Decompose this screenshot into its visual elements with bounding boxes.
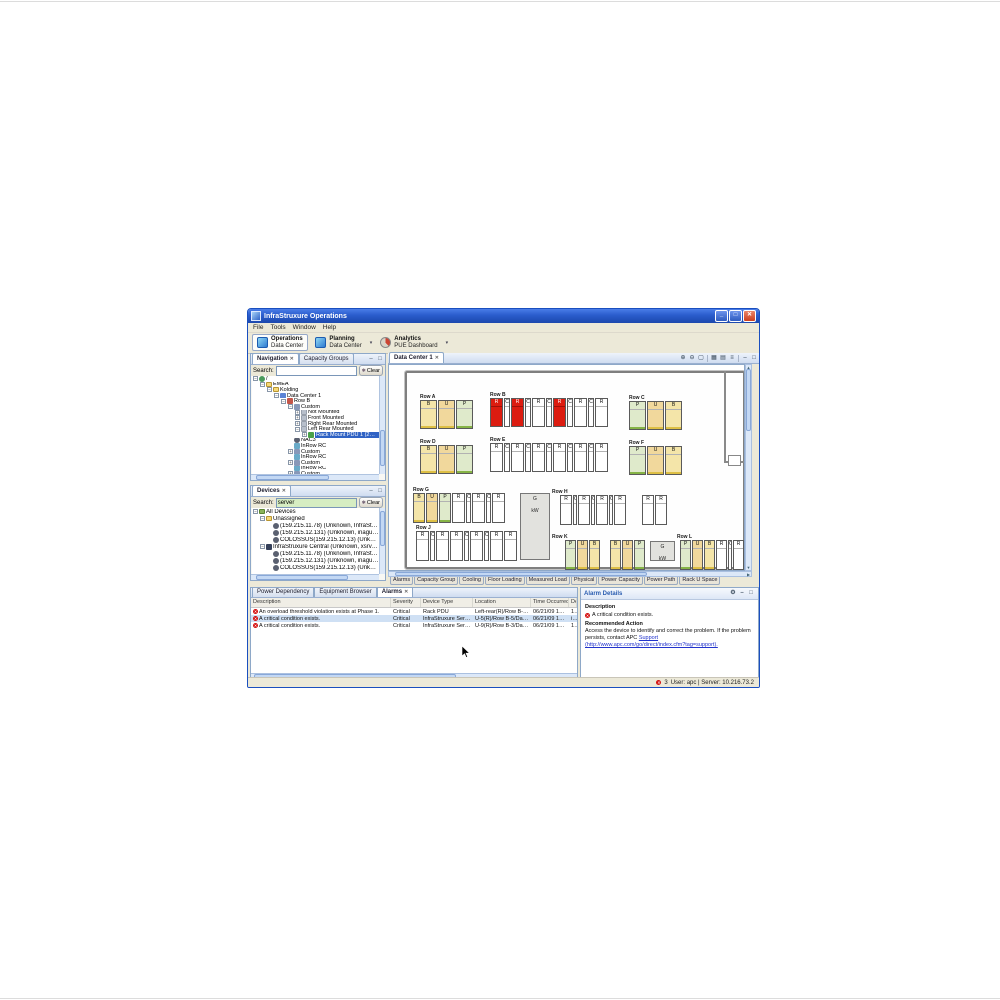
tree-item-label: COLOSSUS(159.215.12.13) (Unknown, coloss…	[280, 537, 379, 543]
view-tab-measured-load[interactable]: Measured Load	[526, 577, 570, 585]
rack-unit[interactable]: R	[614, 495, 626, 525]
perspective-planning[interactable]: PlanningData Center	[310, 334, 366, 351]
grid-icon[interactable]: ▦	[710, 354, 718, 362]
rack-letter: C	[592, 496, 594, 504]
minimize-icon[interactable]: –	[738, 589, 746, 597]
tree-item-label: COLOSSUS(159.215.12.13) (Unknown, coloss…	[280, 565, 379, 571]
rack-unit[interactable]: B	[610, 540, 621, 570]
expander-icon[interactable]: −	[295, 427, 300, 432]
expander-icon[interactable]: −	[253, 509, 258, 514]
analytics-icon	[380, 337, 391, 348]
rack-letter: R	[533, 399, 544, 407]
pod-label: G	[533, 496, 537, 502]
minimize-window-button[interactable]	[715, 310, 728, 322]
rack-letter: B	[421, 446, 436, 454]
rack-letter: R	[656, 496, 666, 504]
column-header-location[interactable]: Location	[473, 598, 531, 607]
expander-icon[interactable]: −	[253, 376, 258, 381]
menu-tools[interactable]: Tools	[270, 323, 285, 332]
minimize-icon[interactable]: –	[367, 355, 375, 363]
rack-unit[interactable]: R	[504, 531, 517, 561]
dev-tree-item-colossus-159-215-12-13-unknown-colossus-ame-apc-c[interactable]: COLOSSUS(159.215.12.13) (Unknown, coloss…	[252, 536, 379, 543]
rack-letter: B	[421, 401, 436, 409]
dev-tree-item-159-215-11-78-unknown-infrastruxure-server[interactable]: (159.215.11.78) (Unknown, InfraStruxure …	[252, 550, 379, 557]
rack-unit[interactable]: R	[642, 495, 654, 525]
expander-icon[interactable]: +	[288, 449, 293, 454]
expander-icon[interactable]: −	[260, 516, 265, 521]
rack-unit[interactable]: B	[420, 400, 437, 429]
rack-letter: C	[431, 532, 434, 540]
row-icon	[287, 398, 293, 404]
view-tab-alarms[interactable]: Alarms	[390, 577, 413, 585]
clear-icon: ✱	[362, 368, 366, 374]
view-tab-cooling[interactable]: Cooling	[459, 577, 484, 585]
rack-letter: U	[439, 446, 454, 454]
rack-unit[interactable]: P	[629, 401, 646, 430]
rack-letter: P	[630, 447, 645, 455]
rack-letter: C	[526, 399, 530, 407]
folder-icon	[273, 387, 279, 392]
row-e: RCRCRCRCRCR	[490, 443, 608, 472]
rack-unit[interactable]: B	[420, 445, 437, 474]
tab-label: Equipment Browser	[319, 589, 371, 595]
rack-letter: R	[596, 444, 607, 452]
dev-tree-item-159-215-12-131-unknown-inagua-ame-apc-com-infrastr[interactable]: (159.215.12.131) (Unknown, inagua.ame.ap…	[252, 557, 379, 564]
rack-letter: R	[471, 532, 482, 540]
rack-unit[interactable]: R	[553, 443, 566, 472]
floor-map-canvas[interactable]: Row ABUPRow BRCRCRCRCRCRRow CPUBRow DBUP…	[388, 364, 745, 571]
close-icon[interactable]: ✕	[282, 488, 286, 494]
alarms-table-body: An overload threshold violation exists a…	[251, 608, 577, 629]
cooling-unit[interactable]: C	[504, 443, 510, 472]
expander-icon[interactable]: +	[288, 460, 293, 465]
rack-unit[interactable]: P	[439, 493, 451, 523]
devices-tree-horizontal-scrollbar[interactable]	[251, 574, 379, 580]
dev-tree-item-all-devices[interactable]: −All Devices	[252, 508, 379, 515]
minimize-icon[interactable]: –	[367, 487, 375, 495]
tab-devices[interactable]: Devices✕	[252, 485, 291, 496]
bottom-tab-equipment-browser[interactable]: Equipment Browser	[314, 587, 376, 597]
expander-icon[interactable]: −	[288, 404, 293, 409]
cell-description: An overload threshold violation exists a…	[251, 609, 391, 615]
rack-letter: B	[590, 541, 599, 549]
rack-unit[interactable]: R	[472, 493, 485, 523]
expander-icon[interactable]: −	[281, 399, 286, 404]
rack-letter: P	[566, 541, 575, 549]
description-label: Description	[585, 604, 754, 611]
rack-letter: R	[597, 496, 607, 504]
rack-unit[interactable]: R	[733, 540, 744, 570]
expander-icon[interactable]: +	[302, 432, 307, 437]
dev-tree-item-159-215-11-78-unknown-infrastruxure-server[interactable]: (159.215.11.78) (Unknown, InfraStruxure …	[252, 522, 379, 529]
cooling-unit[interactable]: C	[591, 495, 595, 525]
maximize-icon[interactable]: □	[376, 487, 384, 495]
rack-unit[interactable]: R	[595, 443, 608, 472]
rack-unit[interactable]: R	[560, 495, 572, 525]
rack-letter: P	[457, 446, 472, 454]
maximize-icon[interactable]: □	[747, 589, 755, 597]
rack-letter: P	[630, 402, 645, 410]
cooling-unit[interactable]: C	[546, 398, 552, 427]
perspective-title: Planning	[329, 336, 361, 343]
cooling-unit[interactable]: C	[567, 443, 573, 472]
alarm-count-icon	[656, 680, 661, 685]
alarm-row[interactable]: An overload threshold violation exists a…	[251, 608, 577, 615]
rack-unit[interactable]: P	[634, 540, 645, 570]
menu-help[interactable]: Help	[323, 323, 336, 332]
rack-letter: U	[623, 541, 632, 549]
scroll-right-arrow[interactable]: ▶	[746, 572, 751, 576]
devices-clear-button[interactable]: ✱ Clear	[359, 497, 383, 508]
column-header-severity[interactable]: Severity	[391, 598, 421, 607]
expander-icon[interactable]: +	[295, 415, 300, 420]
tree-item-label: /	[266, 376, 268, 382]
dev-tree-item-infrastruxure-central-unknown-xsrv-02-smea-apc-com-inf[interactable]: −InfraStruxure Central (Unknown, xsrv-02…	[252, 543, 379, 550]
rack-letter: R	[596, 399, 607, 407]
dev-tree-item-unassigned[interactable]: −Unassigned	[252, 515, 379, 522]
list-icon[interactable]: ≡	[728, 354, 736, 362]
rack-letter: B	[611, 541, 620, 549]
cooling-unit[interactable]: C	[466, 493, 471, 523]
perspective-toolbar: OperationsData CenterPlanningData Center…	[248, 332, 759, 354]
rack-unit[interactable]: R	[578, 495, 590, 525]
cooling-unit[interactable]: C	[609, 495, 613, 525]
app-icon	[251, 311, 261, 321]
scroll-down-arrow[interactable]: ▼	[746, 565, 751, 570]
cooling-unit[interactable]: C	[567, 398, 573, 427]
rack-letter: U	[648, 447, 663, 455]
cooling-unit[interactable]: C	[525, 398, 531, 427]
rack-unit[interactable]: U	[426, 493, 438, 523]
mount-icon	[301, 426, 307, 432]
column-header-device-type[interactable]: Device Type	[421, 598, 473, 607]
perspective-title: Operations	[271, 336, 303, 343]
pod-sublabel: kW	[659, 556, 666, 562]
recommended-action-label: Recommended Action	[585, 621, 754, 628]
cooling-unit[interactable]: C	[588, 398, 594, 427]
rack-unit[interactable]: R	[450, 531, 463, 561]
cell-time-occurred: 06/21/09 13:36:33	[531, 609, 569, 615]
alarm-details-toolbar: ⚙–□	[729, 589, 755, 598]
rack-unit[interactable]: U	[647, 446, 664, 475]
alarm-count: 3	[664, 680, 667, 686]
cell-device: 159	[569, 623, 577, 629]
row-j: RCRRCRCRR	[416, 531, 517, 561]
title-bar[interactable]: InfraStruxure Operations	[248, 309, 759, 323]
tree-item-label: (159.215.11.78) (Unknown, InfraStruxure …	[280, 551, 379, 557]
rack-unit[interactable]: U	[622, 540, 633, 570]
device-icon	[273, 537, 279, 543]
perspective-operations[interactable]: OperationsData Center	[252, 334, 308, 351]
rack-letter: U	[439, 401, 454, 409]
row-a: BUP	[420, 400, 473, 429]
alarm-row[interactable]: A critical condition exists.CriticalInfr…	[251, 615, 577, 622]
editor-tab-strip: Data Center 1✕ ⊕⊖▢▦▤≡–□	[388, 353, 759, 364]
rack-unit[interactable]: R	[532, 398, 545, 427]
rack-unit[interactable]: U	[647, 401, 664, 430]
row-d: BUP	[420, 445, 473, 474]
device-icon	[273, 523, 279, 529]
view-tab-rack-u-space[interactable]: Rack U Space	[679, 577, 720, 585]
navigation-tree-horizontal-scrollbar[interactable]	[251, 474, 379, 480]
rack-unit[interactable]: B	[704, 540, 715, 570]
rack-letter: U	[693, 541, 702, 549]
row-f: PUB	[629, 446, 682, 475]
error-icon	[253, 616, 258, 621]
inrow-icon	[294, 443, 300, 449]
close-window-button[interactable]	[743, 310, 756, 322]
bottom-tab-power-dependency[interactable]: Power Dependency	[252, 587, 314, 597]
devices-search-row: Search: ✱ Clear	[251, 497, 385, 508]
device-icon	[273, 558, 279, 564]
cooling-unit[interactable]: C	[728, 540, 732, 570]
view-tab-physical[interactable]: Physical	[571, 577, 597, 585]
devices-tree-vertical-scrollbar[interactable]	[379, 508, 385, 574]
rack-letter: C	[487, 494, 490, 502]
server-root-icon	[259, 376, 265, 382]
rack-letter: R	[717, 541, 726, 549]
cell-device-type: Rack PDU	[421, 609, 473, 615]
rack-unit[interactable]: P	[565, 540, 576, 570]
rack-unit[interactable]: R	[490, 443, 503, 472]
rack-letter: C	[526, 444, 530, 452]
cooling-unit[interactable]: C	[464, 531, 469, 561]
maximize-icon[interactable]: □	[376, 355, 384, 363]
zoom-in-icon[interactable]: ⊕	[679, 354, 687, 362]
rack-unit[interactable]: R	[452, 493, 465, 523]
cooling-unit[interactable]: C	[525, 443, 531, 472]
pdu-pod[interactable]: GkW	[650, 541, 675, 561]
cooling-unit[interactable]: C	[588, 443, 594, 472]
column-header-description[interactable]: Description	[251, 598, 391, 607]
navigation-clear-button[interactable]: ✱ Clear	[359, 365, 383, 376]
devices-search-input[interactable]	[276, 498, 357, 508]
datacenter-icon	[280, 393, 286, 399]
rack-letter: C	[505, 399, 509, 407]
maximize-icon[interactable]: □	[750, 354, 758, 362]
navigation-search-row: Search: ✱ Clear	[251, 365, 385, 376]
error-icon	[253, 623, 258, 628]
clear-icon: ✱	[362, 500, 366, 506]
bottom-panel: Power DependencyEquipment BrowserAlarms✕…	[250, 587, 759, 681]
alarm-rack[interactable]: R	[490, 398, 503, 427]
cooling-unit[interactable]: C	[486, 493, 491, 523]
rack-letter: C	[485, 532, 488, 540]
rack-letter: R	[533, 444, 544, 452]
expander-icon[interactable]: −	[260, 382, 265, 387]
expander-icon[interactable]: −	[260, 544, 265, 549]
tab-label: Alarms	[382, 589, 402, 595]
rack-letter: C	[547, 399, 551, 407]
rack-unit[interactable]: B	[589, 540, 600, 570]
close-icon[interactable]: ✕	[404, 589, 408, 595]
rack-unit[interactable]: R	[492, 493, 505, 523]
cell-device-type: InfraStruxure Server	[421, 623, 473, 629]
view-tab-power-capacity[interactable]: Power Capacity	[598, 577, 643, 585]
rack-letter: R	[493, 494, 504, 502]
rack-letter: B	[414, 494, 424, 502]
tree-item-label: (159.215.12.131) (Unknown, inagua.ame.ap…	[280, 558, 379, 564]
folder-icon	[266, 516, 272, 521]
rack-unit[interactable]: B	[665, 446, 682, 475]
rack-letter: R	[505, 532, 516, 540]
perspective-subtitle: PUE Dashboard	[394, 343, 437, 349]
cooling-unit[interactable]: C	[504, 398, 510, 427]
panel-buttons: –□	[367, 487, 384, 496]
map-view-tabs: AlarmsCapacity GroupCoolingFloor Loading…	[390, 577, 759, 585]
alarm-rack[interactable]: R	[511, 398, 524, 427]
row-l: PUBRCR	[677, 540, 744, 570]
tab-capacity-groups[interactable]: Capacity Groups	[299, 353, 354, 364]
cooling-unit[interactable]: C	[573, 495, 577, 525]
planning-icon	[315, 337, 326, 348]
alarm-rack[interactable]: R	[553, 398, 566, 427]
view-tab-floor-loading[interactable]: Floor Loading	[485, 577, 525, 585]
layers-icon[interactable]: ▤	[719, 354, 727, 362]
perspective-analytics[interactable]: AnalyticsPUE Dashboard	[375, 334, 442, 351]
rack-unit[interactable]: U	[438, 400, 455, 429]
tab-label: Data Center 1	[394, 355, 433, 361]
dev-tree-item-colossus-159-215-12-13-unknown-colossus-ame-apc-c[interactable]: COLOSSUS(159.215.12.13) (Unknown, coloss…	[252, 564, 379, 571]
rack-letter: B	[666, 402, 681, 410]
rack-unit[interactable]: R	[470, 531, 483, 561]
rack-letter: U	[427, 494, 437, 502]
rack-unit[interactable]: R	[490, 531, 503, 561]
rack-unit[interactable]: U	[692, 540, 703, 570]
rack-unit[interactable]: R	[416, 531, 429, 561]
mount-icon	[301, 415, 307, 421]
rack-letter: R	[473, 494, 484, 502]
rack-unit[interactable]: R	[574, 443, 587, 472]
expander-icon[interactable]: −	[267, 387, 272, 392]
navigation-search-input[interactable]	[276, 366, 357, 376]
rack-letter: C	[465, 532, 468, 540]
rack-unit[interactable]: B	[413, 493, 425, 523]
view-tab-capacity-group[interactable]: Capacity Group	[414, 577, 458, 585]
rack-letter: R	[575, 444, 586, 452]
tab-label: Capacity Groups	[304, 356, 349, 362]
rack-letter: U	[578, 541, 587, 549]
rack-letter: R	[554, 399, 565, 407]
fit-icon[interactable]: ▢	[697, 354, 705, 362]
rack-letter: B	[666, 447, 681, 455]
page-border-top	[0, 1, 1000, 2]
column-header-de[interactable]: De	[569, 598, 577, 607]
rack-unit[interactable]: R	[655, 495, 667, 525]
alarms-table-panel: Power DependencyEquipment BrowserAlarms✕…	[250, 587, 578, 681]
cell-location: Left-rear(R)/Row B-1/Data Center 1/K...	[473, 609, 531, 615]
close-icon[interactable]: ✕	[290, 356, 294, 362]
tree-item-label: (159.215.12.131) (Unknown, inagua.ame.ap…	[280, 530, 379, 536]
alarms-table-header[interactable]: DescriptionSeverityDevice TypeLocationTi…	[251, 598, 577, 608]
minimize-icon[interactable]: –	[741, 354, 749, 362]
rack-unit[interactable]: R	[511, 443, 524, 472]
devices-tree: −All Devices−Unassigned(159.215.11.78) (…	[252, 508, 379, 574]
pdu-pod[interactable]: GkW	[520, 493, 550, 560]
rack-letter: R	[491, 399, 502, 407]
row-g: BUPRCRCR	[413, 493, 505, 523]
rack-unit[interactable]: U	[577, 540, 588, 570]
rack-letter: R	[512, 444, 523, 452]
mouse-cursor	[462, 645, 471, 657]
rack-letter: U	[648, 402, 663, 410]
rack-letter: P	[635, 541, 644, 549]
menu-window[interactable]: Window	[293, 323, 316, 332]
cell-description: A critical condition exists.	[251, 623, 391, 629]
perspective-subtitle: Data Center	[271, 343, 303, 349]
column-header-time-occurred[interactable]: Time Occurred	[531, 598, 569, 607]
dropdown-arrow-icon[interactable]: ▾	[370, 340, 373, 346]
settings-icon[interactable]: ⚙	[729, 589, 737, 597]
rack-letter: R	[643, 496, 653, 504]
device-icon	[273, 565, 279, 571]
view-tab-power-path[interactable]: Power Path	[644, 577, 678, 585]
rack-letter: C	[568, 399, 572, 407]
rack-letter: R	[554, 444, 565, 452]
expander-icon[interactable]: +	[295, 421, 300, 426]
cooling-unit[interactable]: C	[546, 443, 552, 472]
rack-letter: R	[579, 496, 589, 504]
rack-unit[interactable]: R	[532, 443, 545, 472]
devices-panel: Devices✕–□ Search: ✱ Clear −All Devices−…	[250, 485, 386, 581]
rack-letter: P	[457, 401, 472, 409]
rack-unit[interactable]: R	[716, 540, 727, 570]
navigation-tab-strip: Navigation✕Capacity Groups–□	[251, 354, 385, 365]
rack-unit[interactable]: R	[436, 531, 449, 561]
maximize-window-button[interactable]	[729, 310, 742, 322]
rack-letter: C	[610, 496, 612, 504]
perspective-title: Analytics	[394, 336, 437, 343]
rack-unit[interactable]: P	[456, 400, 473, 429]
navigation-tree-vertical-scrollbar[interactable]	[379, 376, 385, 474]
dev-tree-item-159-215-12-131-unknown-inagua-ame-apc-com-infrastr[interactable]: (159.215.12.131) (Unknown, inagua.ame.ap…	[252, 529, 379, 536]
rack-letter: C	[568, 444, 572, 452]
tab-label: Power Dependency	[257, 589, 309, 595]
cell-severity: Critical	[391, 609, 421, 615]
rack-unit[interactable]: U	[438, 445, 455, 474]
rack-letter: P	[440, 494, 450, 502]
zoom-out-icon[interactable]: ⊖	[688, 354, 696, 362]
expander-icon[interactable]: −	[274, 393, 279, 398]
rack-letter: R	[491, 444, 502, 452]
cell-device: inag	[569, 616, 577, 622]
rack-unit[interactable]: B	[665, 401, 682, 430]
dropdown-arrow-icon[interactable]: ▾	[446, 340, 449, 346]
cell-severity: Critical	[391, 616, 421, 622]
rack-unit[interactable]: P	[629, 446, 646, 475]
row-c: PUB	[629, 401, 682, 430]
map-vertical-scrollbar[interactable]: ▲ ▼	[745, 364, 752, 571]
cooling-unit[interactable]: C	[484, 531, 489, 561]
tab-label: Devices	[257, 488, 280, 494]
rack-unit[interactable]: R	[574, 398, 587, 427]
rack-unit[interactable]: R	[596, 495, 608, 525]
editor-tab-data-center-1[interactable]: Data Center 1✕	[389, 352, 444, 363]
rack-letter: C	[574, 496, 576, 504]
alarm-row[interactable]: A critical condition exists.CriticalInfr…	[251, 622, 577, 629]
close-icon[interactable]: ✕	[435, 355, 439, 361]
rack-unit[interactable]: P	[456, 445, 473, 474]
cooling-unit[interactable]: C	[430, 531, 435, 561]
tree-item-label: All Devices	[266, 509, 296, 515]
tab-navigation[interactable]: Navigation✕	[252, 353, 299, 364]
expander-icon[interactable]: +	[295, 410, 300, 415]
rack-unit[interactable]: P	[680, 540, 691, 570]
alarm-details-title: Alarm Details	[584, 591, 622, 597]
bottom-tab-alarms[interactable]: Alarms✕	[377, 587, 414, 597]
rack-unit[interactable]: R	[595, 398, 608, 427]
menu-file[interactable]: File	[253, 323, 263, 332]
